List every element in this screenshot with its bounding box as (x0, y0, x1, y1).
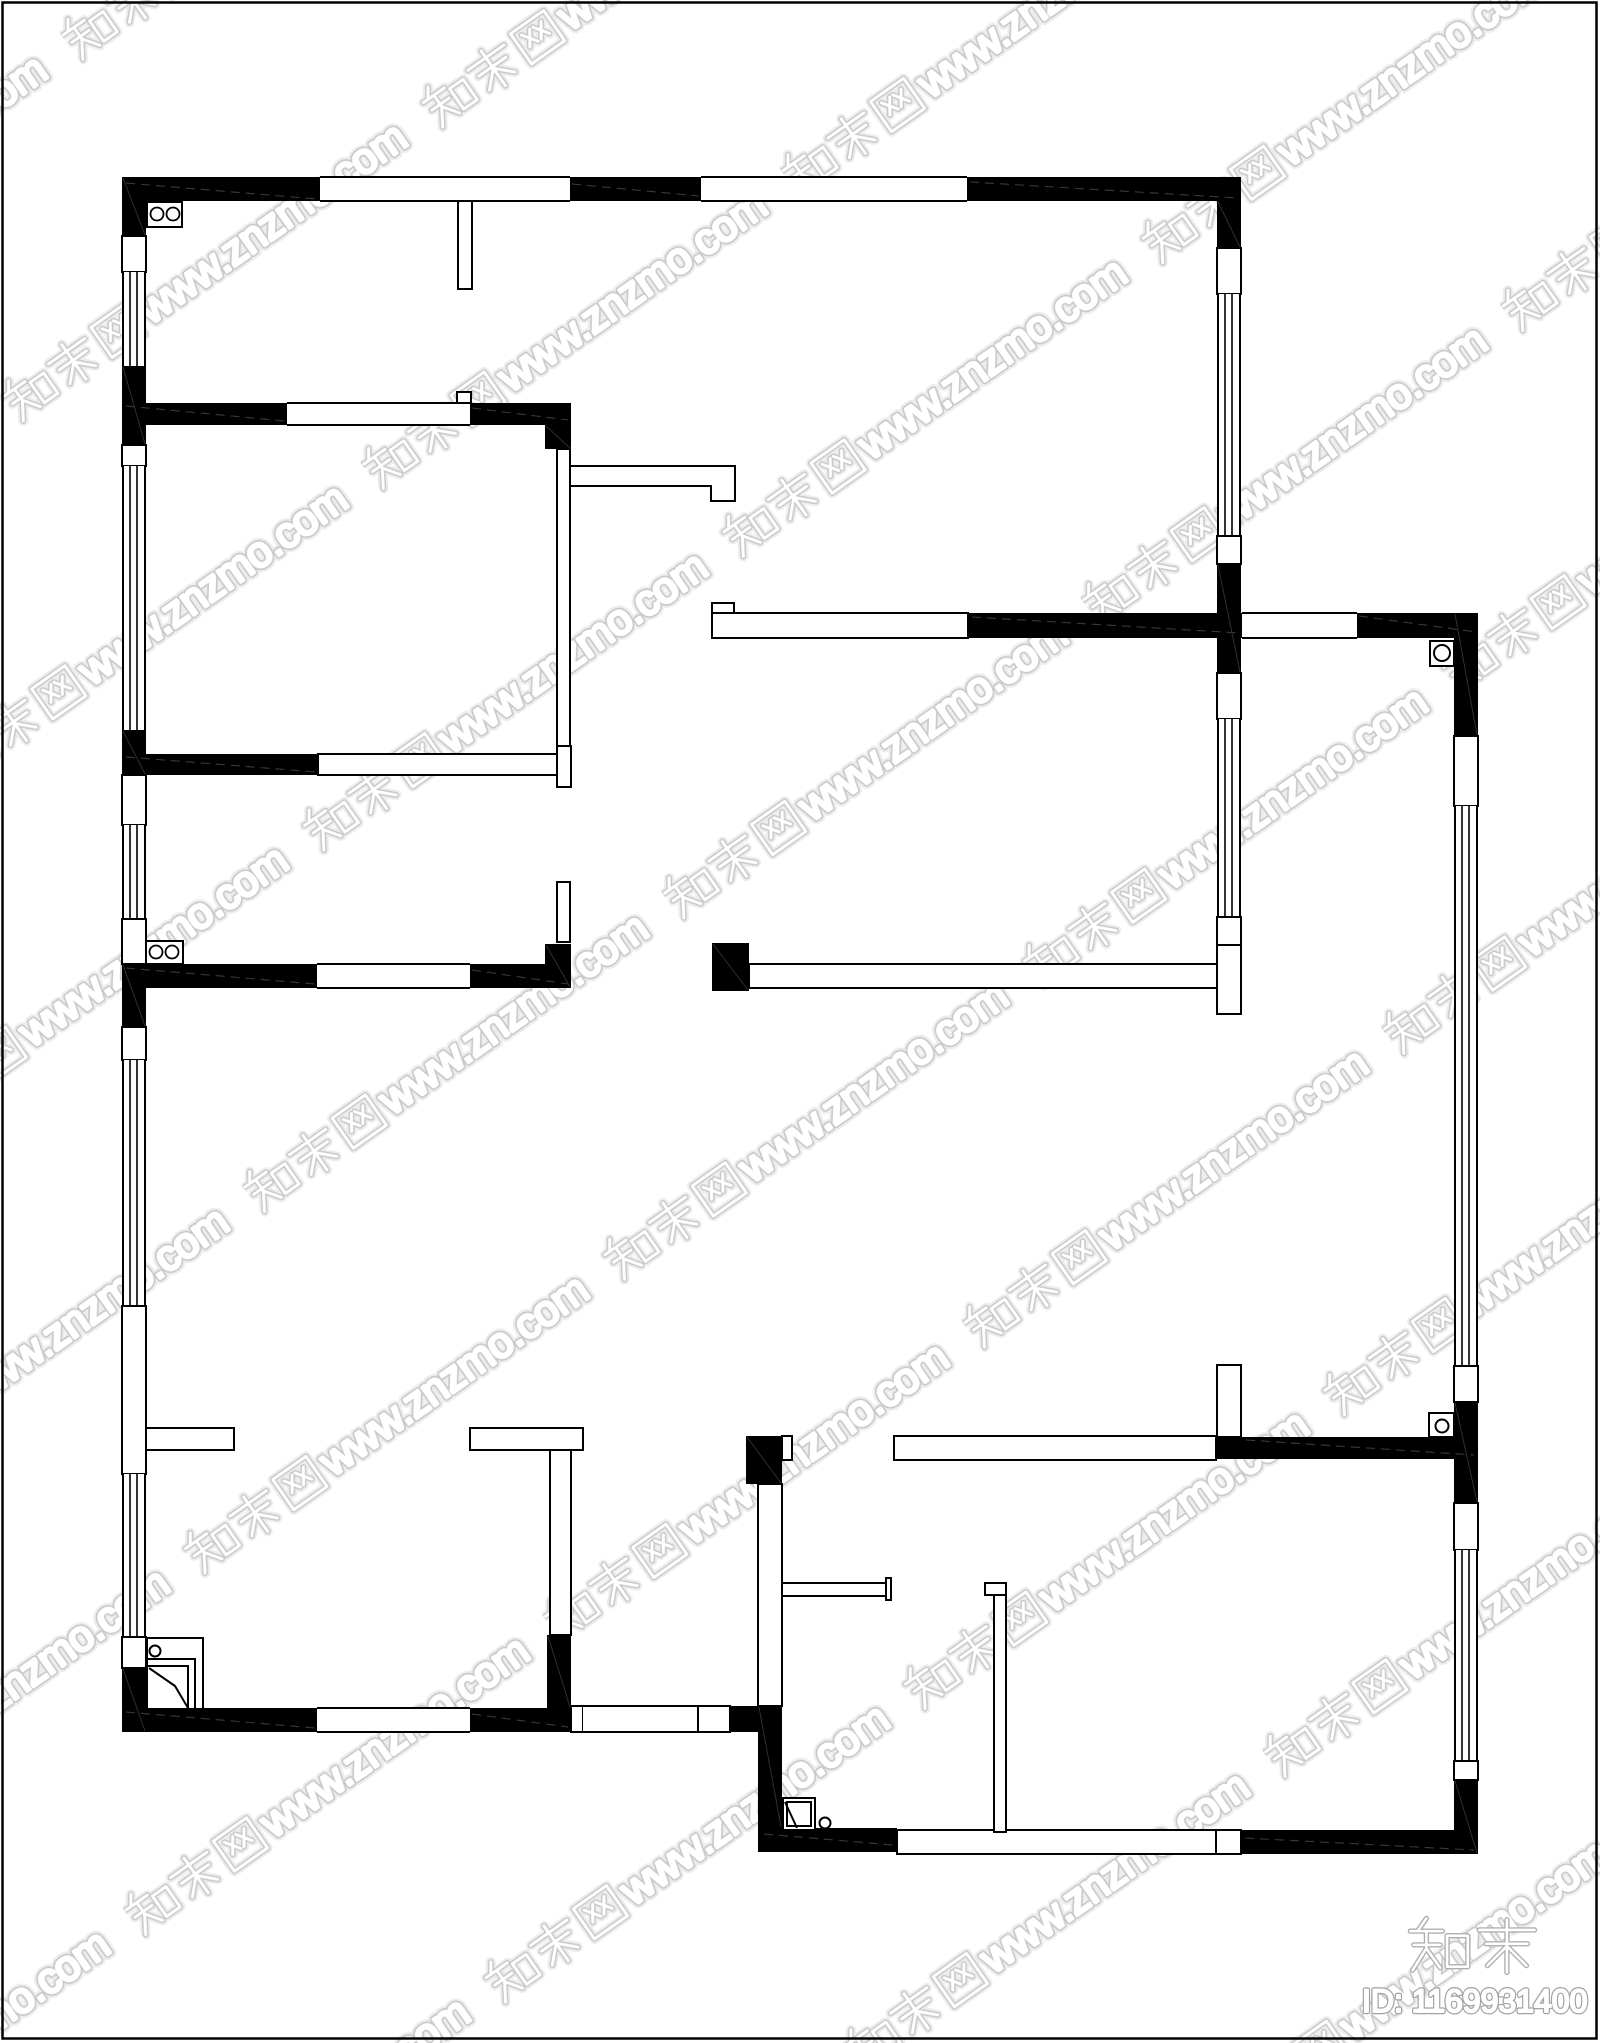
svg-text:ID: 1169931400: ID: 1169931400 (1362, 1983, 1587, 2019)
